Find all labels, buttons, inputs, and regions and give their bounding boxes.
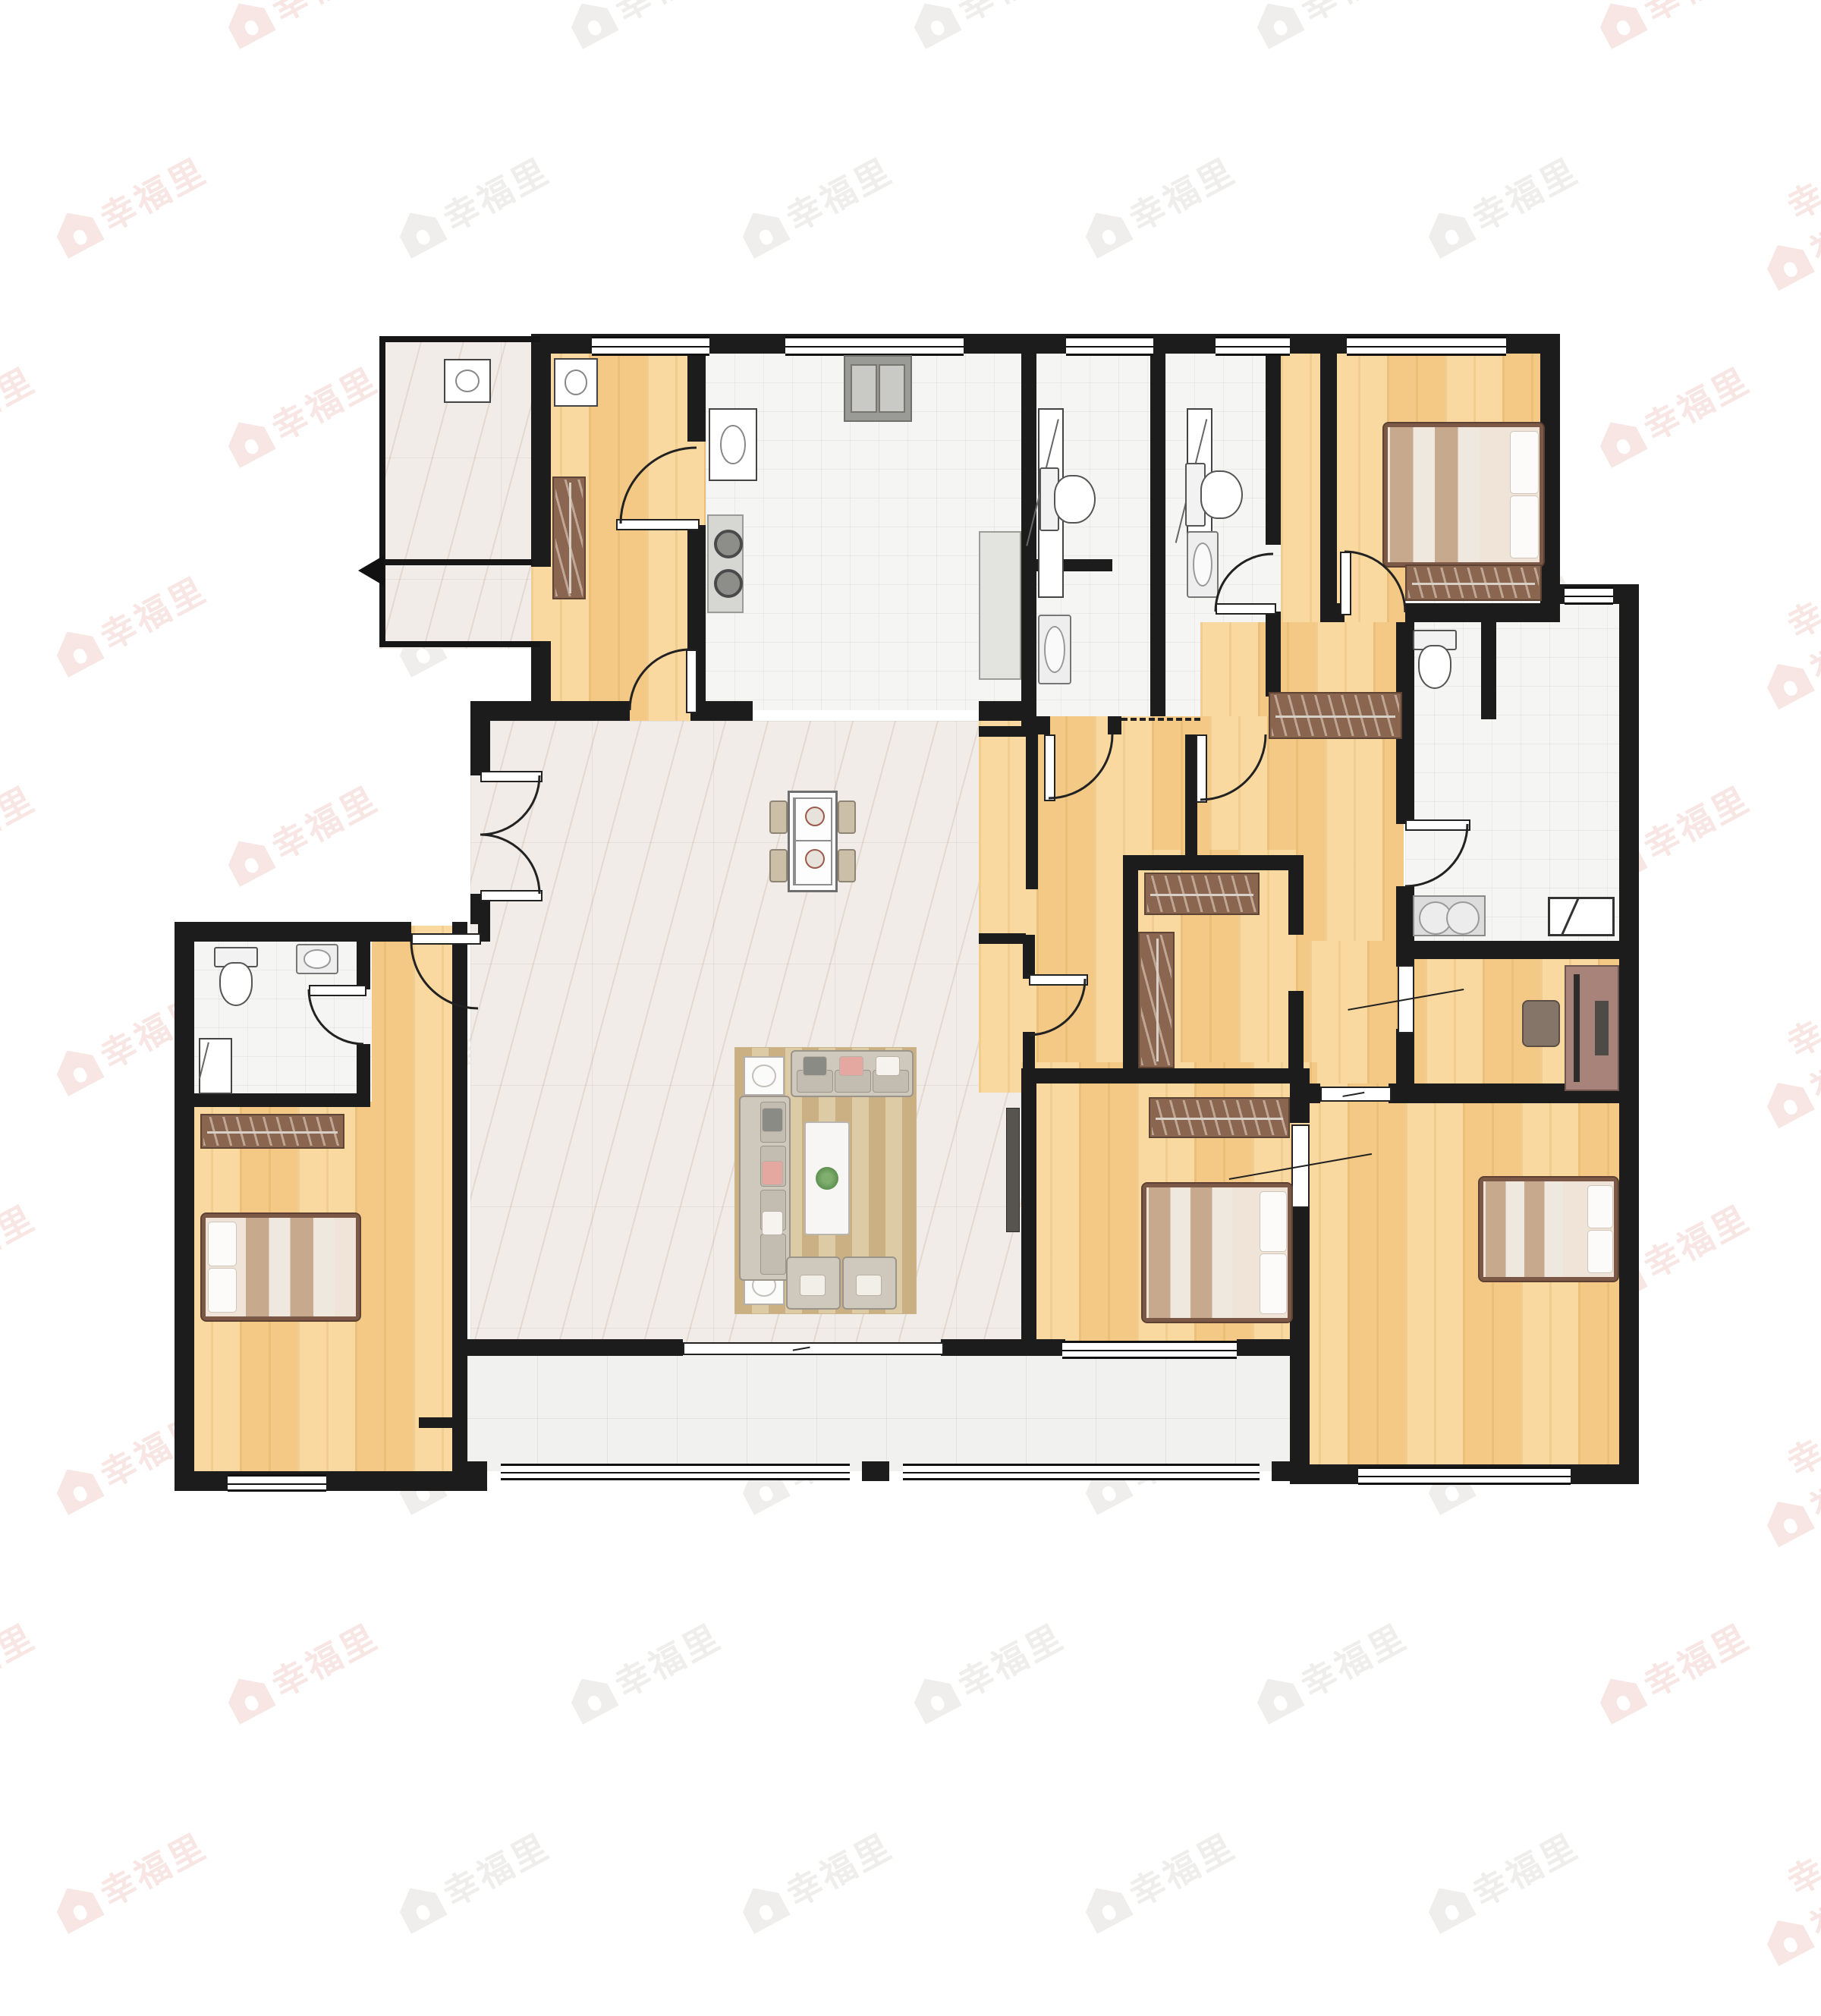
watermark-house-icon (735, 1879, 792, 1937)
door-swing-arc (630, 649, 690, 710)
watermark-text: 幸福里 (1463, 1819, 1587, 1917)
door-swing-arc (1216, 554, 1273, 612)
door-swing-arc (480, 835, 539, 894)
watermark-text: 幸福里 (91, 1819, 215, 1917)
watermark: 幸福里 (1420, 1819, 1587, 1940)
watermark-house-icon (1421, 1879, 1478, 1937)
floor-plan-canvas: 幸福里幸福里幸福里幸福里幸福里幸福里幸福里幸福里幸福里幸福里幸福里幸福里幸福里幸… (0, 0, 1821, 1821)
watermark-text: 幸福里 (777, 1819, 901, 1917)
watermark: 幸福里 (391, 1819, 558, 1940)
watermark-text: 幸福里 (1120, 1819, 1244, 1917)
door-swing-arc (621, 448, 697, 524)
door-swing-arc (1200, 734, 1266, 800)
watermark: 幸福里 (734, 1819, 901, 1940)
door-swing-arc (411, 942, 478, 1008)
watermark: 幸福里 (1077, 1819, 1244, 1940)
door-swing-arc (480, 775, 539, 835)
watermark-text: 幸福里 (434, 1819, 558, 1917)
door-swing-arc (1049, 734, 1112, 798)
door-swing-arc (1345, 552, 1405, 612)
watermark: 幸福里 (48, 1819, 215, 1940)
watermark-house-icon (1760, 1911, 1816, 1969)
door-swing-arc (1029, 979, 1085, 1035)
watermark-house-icon (1078, 1879, 1135, 1937)
watermark-house-icon (392, 1879, 449, 1937)
door-arc-layer (0, 0, 1821, 1821)
door-swing-arc (1405, 824, 1467, 886)
door-swing-arc (309, 989, 363, 1044)
watermark: 幸福里 (1735, 1843, 1821, 2016)
watermark-house-icon (49, 1879, 106, 1937)
